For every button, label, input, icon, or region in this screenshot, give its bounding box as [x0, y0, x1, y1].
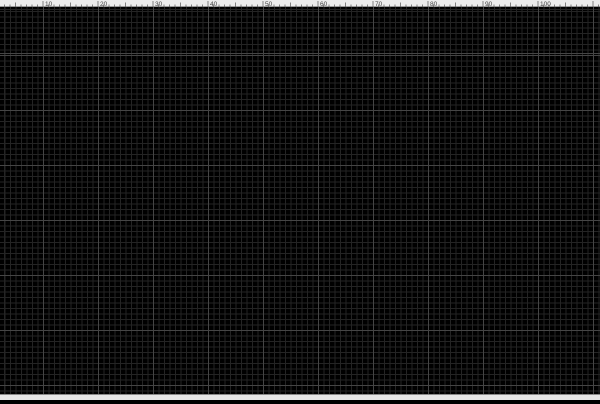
ruler-label: 100: [540, 1, 551, 7]
pcb-grid[interactable]: [0, 7, 600, 394]
ruler-label: 20: [100, 1, 108, 7]
bottom-scroll-edge[interactable]: [0, 394, 600, 400]
pcb-editor-canvas[interactable]: + - IN1 IN2 SDA SCL + - - + SDA SCL 9 8 …: [0, 0, 600, 400]
ruler-label: 10: [45, 1, 53, 7]
ruler-label: 30: [155, 1, 163, 7]
horizontal-ruler[interactable]: 102030405060708090100: [0, 0, 600, 7]
ruler-ticks: 102030405060708090100: [0, 0, 600, 7]
ruler-label: 90: [485, 1, 493, 7]
ruler-label: 70: [375, 1, 383, 7]
ruler-label: 60: [320, 1, 328, 7]
ruler-label: 50: [265, 1, 273, 7]
ruler-label: 40: [210, 1, 218, 7]
ruler-label: 80: [430, 1, 438, 7]
